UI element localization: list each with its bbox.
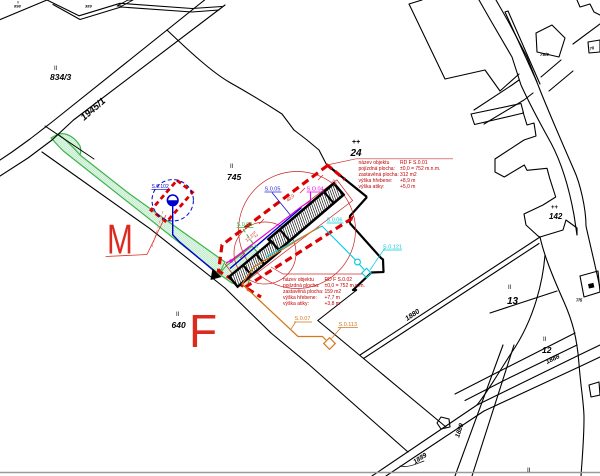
svg-text:II: II bbox=[543, 337, 547, 343]
svg-text:24: 24 bbox=[350, 148, 363, 159]
svg-text:S.0.05: S.0.05 bbox=[265, 187, 281, 193]
svg-text:II: II bbox=[508, 285, 512, 291]
svg-text:76/9: 76/9 bbox=[540, 52, 549, 57]
svg-text:II: II bbox=[230, 164, 234, 170]
svg-text:+5,0 m: +5,0 m bbox=[400, 184, 415, 190]
svg-text:S.0.113: S.0.113 bbox=[339, 322, 358, 328]
svg-text:389: 389 bbox=[85, 4, 92, 9]
svg-text:II: II bbox=[176, 312, 180, 318]
svg-text:142: 142 bbox=[549, 212, 563, 221]
svg-text:7/5: 7/5 bbox=[576, 298, 583, 303]
svg-text:S.0.06: S.0.06 bbox=[327, 218, 343, 224]
svg-text:834/3: 834/3 bbox=[50, 72, 72, 82]
svg-text:F: F bbox=[189, 305, 217, 357]
svg-text:výška atiky:: výška atiky: bbox=[359, 184, 385, 190]
svg-text:13: 13 bbox=[507, 296, 519, 307]
svg-text:II: II bbox=[527, 467, 531, 474]
svg-text:S.0.03: S.0.03 bbox=[237, 222, 253, 228]
svg-text:S.O.04: S.O.04 bbox=[307, 187, 324, 193]
svg-text:výška atiky:: výška atiky: bbox=[283, 301, 309, 307]
svg-text:S.0.121: S.0.121 bbox=[383, 245, 402, 251]
svg-text:+3,8 m: +3,8 m bbox=[325, 301, 340, 307]
svg-text:640: 640 bbox=[172, 320, 186, 330]
svg-text:++: ++ bbox=[551, 205, 559, 211]
svg-text:++: ++ bbox=[352, 139, 360, 146]
svg-text:12: 12 bbox=[542, 345, 552, 355]
svg-text:898: 898 bbox=[14, 4, 21, 9]
svg-text:745: 745 bbox=[227, 172, 241, 182]
svg-text:S.0.07: S.0.07 bbox=[295, 316, 311, 322]
